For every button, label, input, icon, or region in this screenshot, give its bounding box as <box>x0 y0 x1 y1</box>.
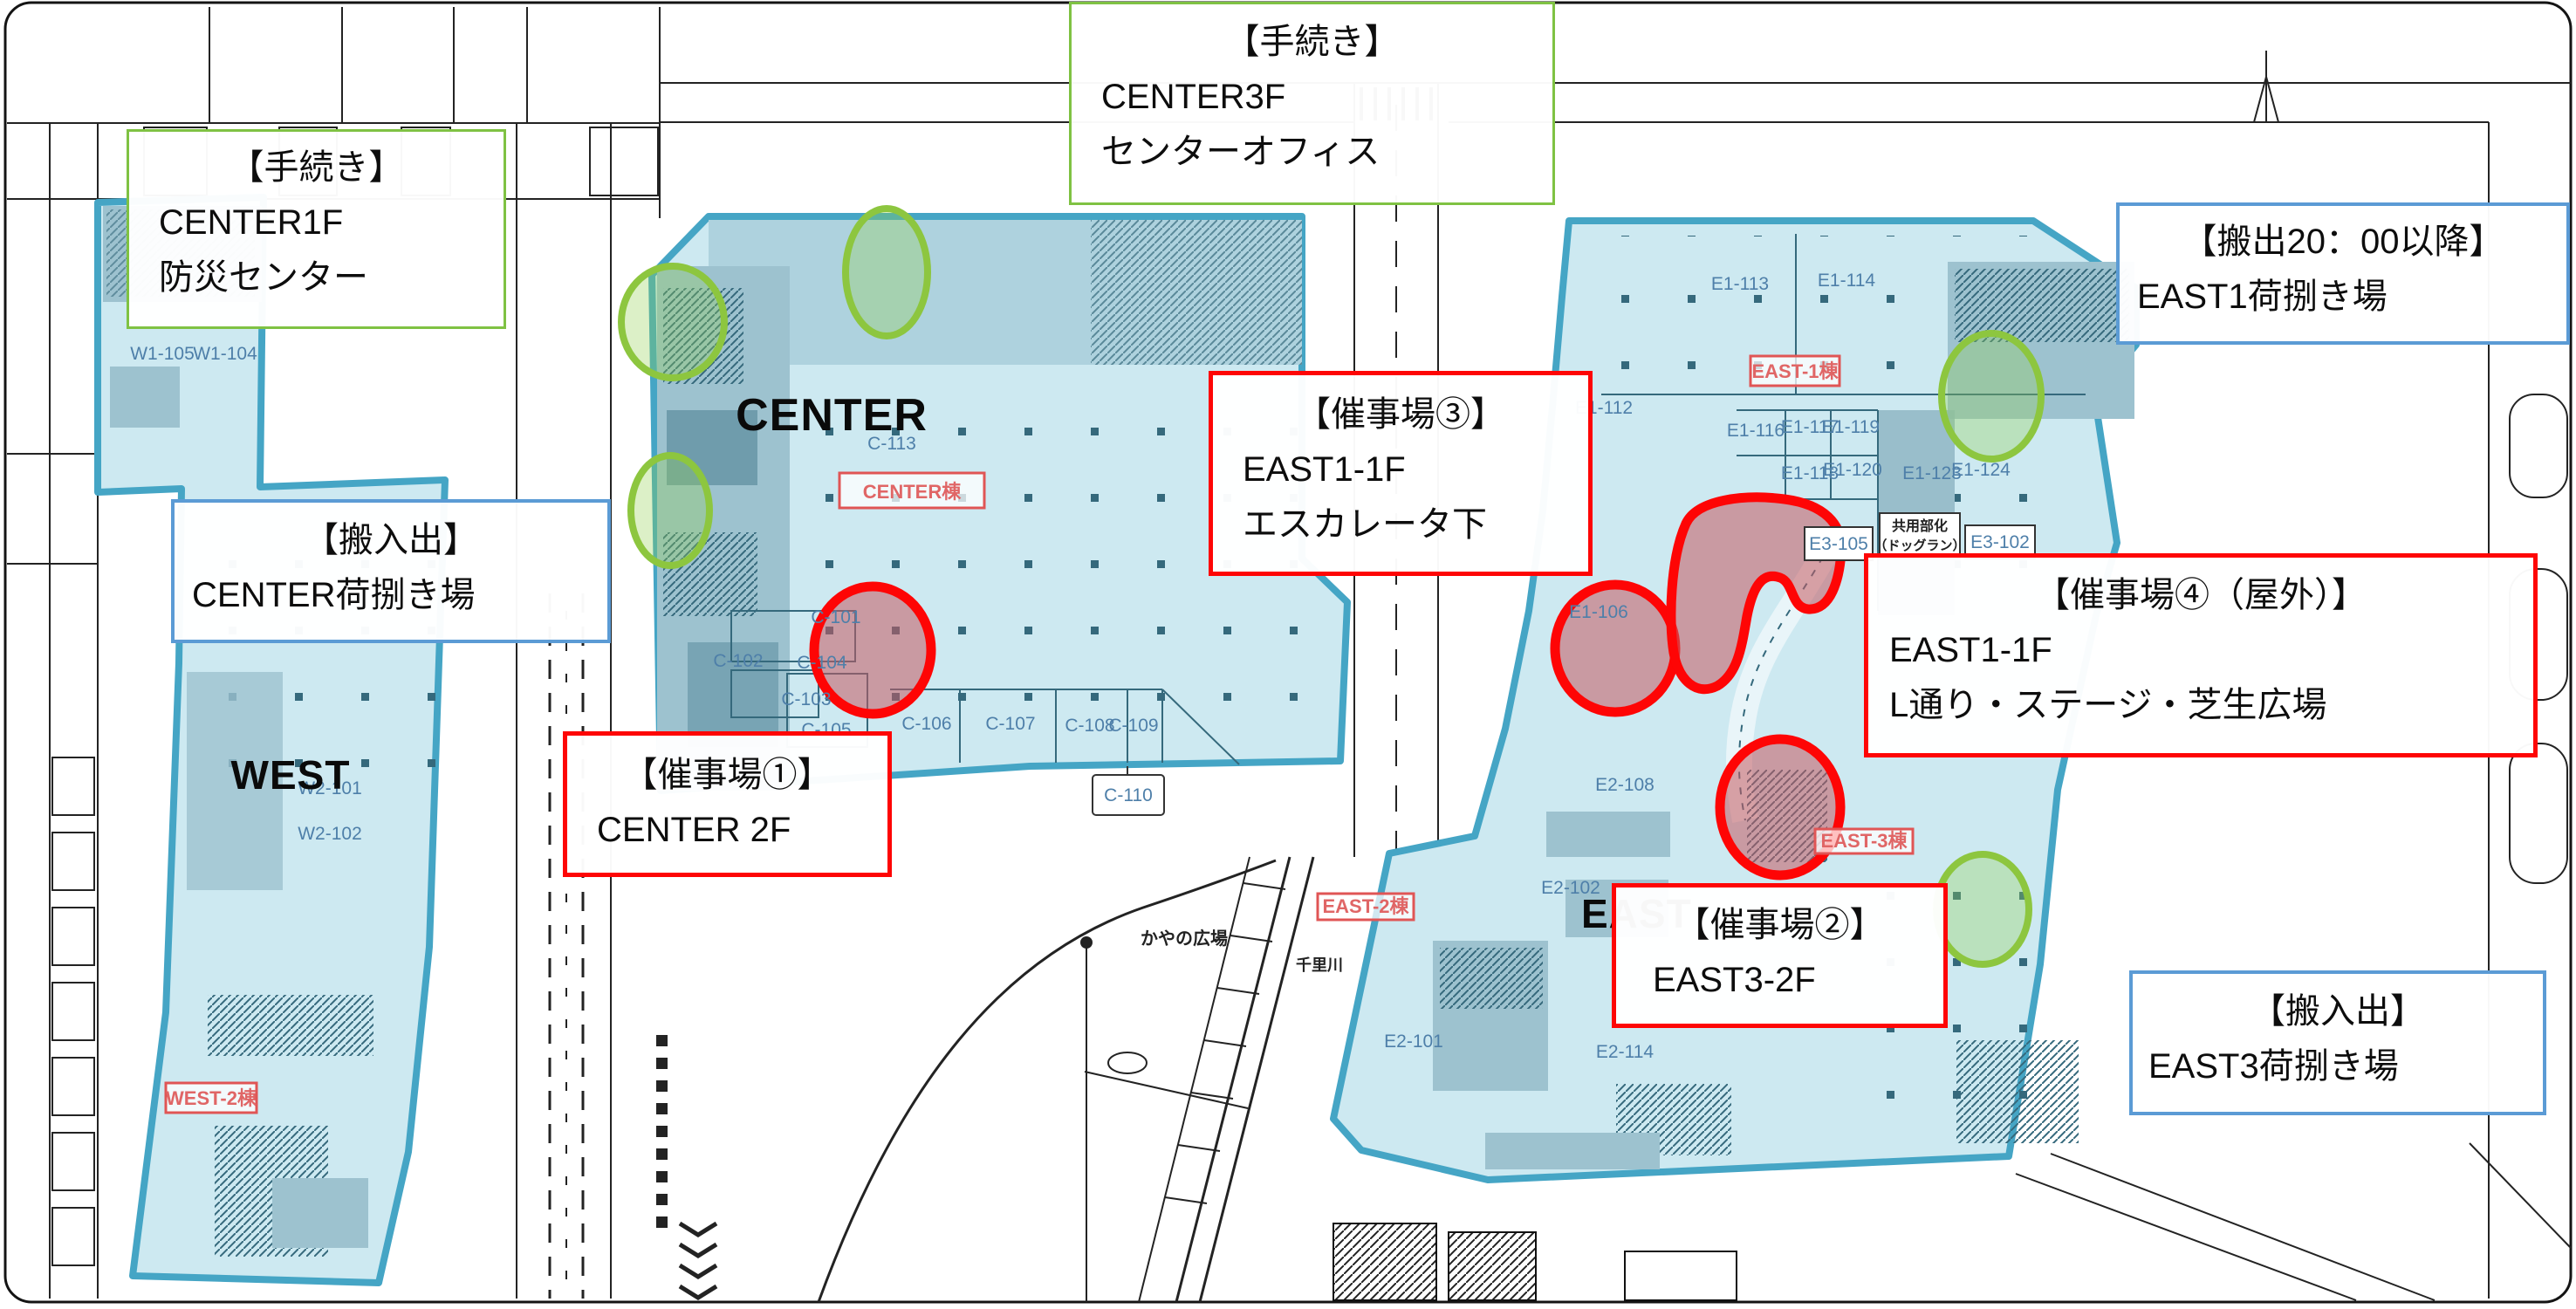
callout-title: 【搬入出】 <box>2133 984 2543 1039</box>
room-code: E1-114 <box>1818 271 1875 291</box>
callout-line: EAST3荷捌き場 <box>2133 1039 2543 1094</box>
callout-procedure-center1f: 【手続き】 CENTER1F 防災センター <box>127 129 506 329</box>
room-code: E2-114 <box>1596 1042 1654 1062</box>
green-highlight-center-top <box>846 209 928 336</box>
callout-line: CENTER荷捌き場 <box>175 568 607 623</box>
room-code: E1-119 <box>1822 417 1880 437</box>
callout-venue3: 【催事場③】 EAST1-1F エスカレータ下 <box>1209 371 1593 576</box>
callout-line: EAST1-1F <box>1213 442 1588 497</box>
callout-venue4: 【催事場④（屋外）】 EAST1-1F L通り・ステージ・芝生広場 <box>1864 553 2538 757</box>
room-code: C-108 <box>1065 716 1114 736</box>
tag-east1: EAST-1棟 <box>1751 360 1839 382</box>
callout-line: EAST1荷捌き場 <box>2120 270 2566 325</box>
room-code: E1-116 <box>1727 421 1785 441</box>
callout-title: 【催事場①】 <box>567 748 887 803</box>
callout-loading-east3: 【搬入出】 EAST3荷捌き場 <box>2129 970 2546 1115</box>
room-code: E1-124 <box>1951 460 2011 480</box>
callout-line: エスカレータ下 <box>1213 497 1588 552</box>
callout-title: 【搬出20：00以降】 <box>2120 215 2566 270</box>
room-code: E1-113 <box>1711 274 1769 294</box>
room-code: W2-102 <box>298 824 362 844</box>
callout-line: EAST3-2F <box>1616 953 1943 1008</box>
room-code: C-106 <box>901 714 951 734</box>
room-code: C-102 <box>713 651 763 671</box>
callout-title: 【搬入出】 <box>175 513 607 568</box>
callout-venue1: 【催事場①】 CENTER 2F <box>563 731 892 877</box>
kyoyo-label-1: 共用部化 <box>1892 517 1948 534</box>
callout-loading-center: 【搬入出】 CENTER荷捌き場 <box>171 499 611 643</box>
callout-title: 【手続き】 <box>1072 15 1552 70</box>
site-map-page: W1-105 W1-104 W2-101 W2-102 C-113 C-101 … <box>0 0 2576 1309</box>
center-label: CENTER <box>736 390 928 441</box>
callout-line: 防災センター <box>129 250 504 305</box>
west-label: WEST <box>231 752 351 798</box>
callout-line: センターオフィス <box>1072 125 1552 180</box>
room-code: E1-106 <box>1569 602 1628 622</box>
plaza-label: かやの広場 <box>1141 928 1228 949</box>
callout-line: CENTER 2F <box>567 803 887 858</box>
callout-title: 【催事場②】 <box>1616 898 1943 953</box>
green-highlight-east1-loading <box>1942 333 2041 459</box>
river-label: 千里川 <box>1296 956 1343 974</box>
room-code: C-109 <box>1108 716 1158 736</box>
room-code: W1-105 <box>130 344 195 364</box>
room-code: E3-105 <box>1809 534 1868 554</box>
room-code: W1-104 <box>193 344 257 364</box>
callout-line: L通り・ステージ・芝生広場 <box>1868 678 2533 733</box>
tag-east3: EAST-3棟 <box>1820 830 1908 852</box>
room-code: C-101 <box>811 607 860 627</box>
callout-carryout-east1: 【搬出20：00以降】 EAST1荷捌き場 <box>2116 202 2570 345</box>
callout-title: 【催事場④（屋外）】 <box>1868 568 2533 623</box>
room-code: E3-102 <box>1970 532 2030 552</box>
callout-procedure-center3f: 【手続き】 CENTER3F センターオフィス <box>1069 2 1555 205</box>
callout-line: EAST1-1F <box>1868 623 2533 678</box>
green-highlight-east3-loading <box>1936 854 2029 964</box>
room-code: C-104 <box>797 653 847 673</box>
room-code: C-103 <box>781 689 831 709</box>
room-code: C-110 <box>1104 785 1153 805</box>
callout-line: CENTER3F <box>1072 70 1552 125</box>
event-marker-venue1-center2f <box>814 586 931 714</box>
green-highlight-center-nw <box>621 266 724 378</box>
green-highlight-center-w <box>631 456 709 565</box>
room-code: E2-108 <box>1595 775 1655 795</box>
room-code: E1-120 <box>1823 460 1882 480</box>
tag-center: CENTER棟 <box>863 481 962 503</box>
callout-line: CENTER1F <box>129 195 504 250</box>
kyoyo-label-2: （ドッグラン） <box>1874 538 1965 553</box>
room-code: C-107 <box>985 714 1035 734</box>
tag-west2: WEST-2棟 <box>166 1087 257 1109</box>
callout-title: 【手続き】 <box>129 140 504 195</box>
callout-title: 【催事場③】 <box>1213 387 1588 442</box>
event-marker-venue2-east3 <box>1720 739 1840 875</box>
room-code: E2-101 <box>1384 1031 1443 1052</box>
tag-east2: EAST-2棟 <box>1322 895 1409 917</box>
callout-venue2: 【催事場②】 EAST3-2F <box>1612 883 1948 1028</box>
